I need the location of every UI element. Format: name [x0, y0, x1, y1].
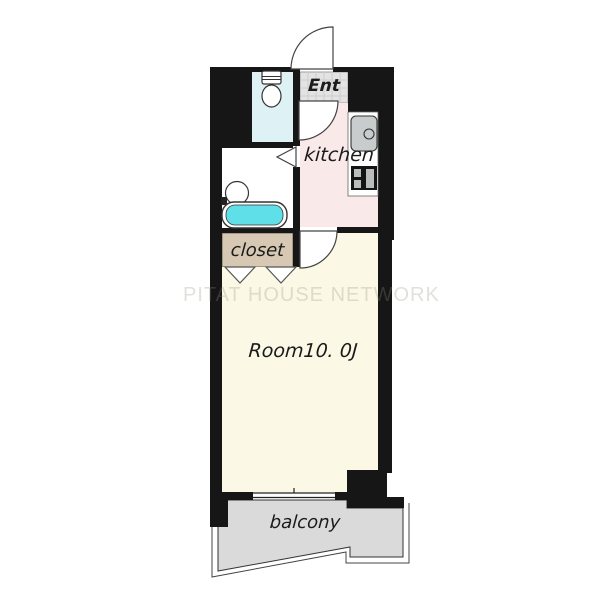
balcony-label: balcony: [239, 514, 370, 532]
wall-block-right-of-entrance: [348, 67, 378, 112]
stove-icon: [351, 166, 377, 190]
closet-label: closet: [221, 242, 293, 260]
entrance-door-swing: [291, 27, 333, 69]
watermark: PITAT HOUSE NETWORK: [183, 284, 440, 307]
wall-washroom-kitchen: [293, 167, 300, 267]
kitchen-label: kitchen: [297, 146, 380, 165]
main-room-label: Room10. 0J: [223, 342, 382, 361]
wall-stub-balcony-left: [215, 492, 228, 527]
wall-kitchen-room: [337, 227, 394, 233]
entrance-label: Ent: [299, 78, 348, 95]
wall-bottom-right: [335, 492, 347, 500]
wall-block-bottom-right: [347, 470, 387, 508]
wall-toilet-washroom: [210, 142, 293, 148]
bathtub-icon: [222, 202, 287, 228]
wall-block-bottom-right-ext: [387, 497, 404, 508]
floorplan-canvas: Ent kitchen closet Room10. 0J balcony PI…: [0, 0, 600, 600]
wall-washroom-closet: [215, 228, 300, 233]
wall-right-upper: [378, 67, 394, 240]
balcony-floor: [218, 500, 403, 571]
toilet-icon: [262, 71, 281, 107]
wall-block-top-left: [210, 67, 252, 148]
